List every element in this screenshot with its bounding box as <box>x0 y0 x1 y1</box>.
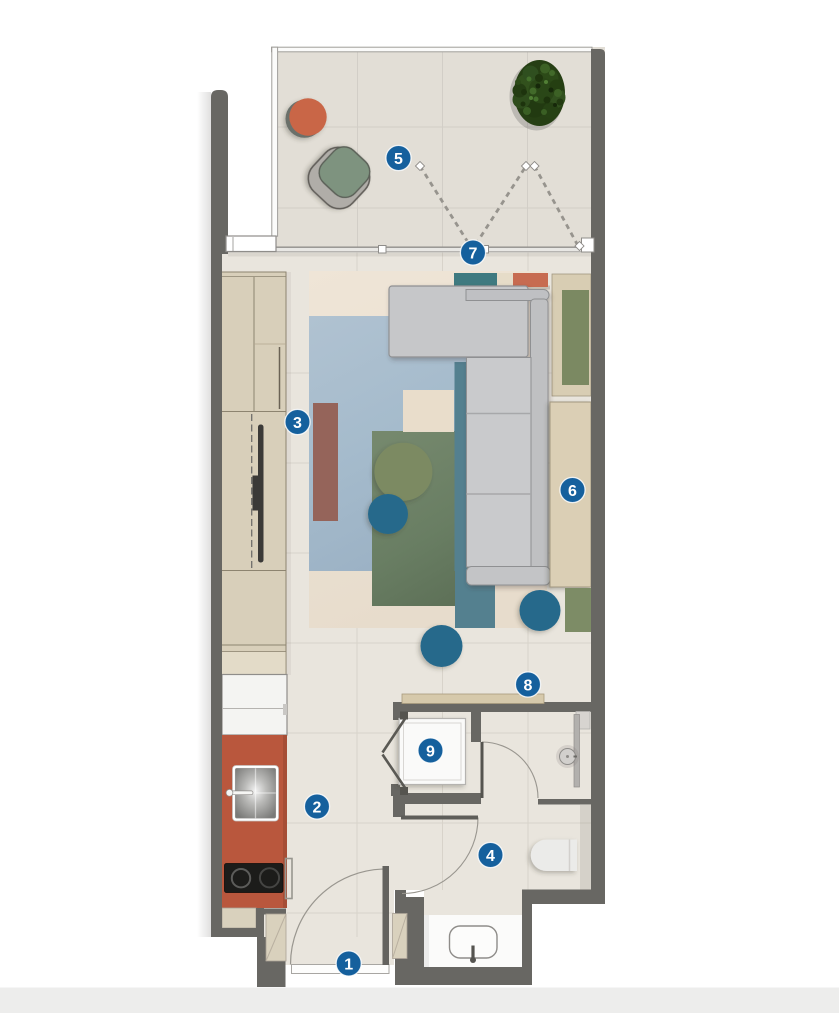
svg-text:9: 9 <box>426 743 435 760</box>
svg-text:8: 8 <box>524 677 533 694</box>
svg-text:3: 3 <box>293 415 302 432</box>
svg-text:1: 1 <box>344 956 353 973</box>
svg-text:4: 4 <box>486 848 495 865</box>
svg-text:6: 6 <box>568 483 577 500</box>
svg-text:7: 7 <box>469 245 478 262</box>
svg-text:5: 5 <box>394 151 403 168</box>
svg-text:2: 2 <box>313 799 322 816</box>
